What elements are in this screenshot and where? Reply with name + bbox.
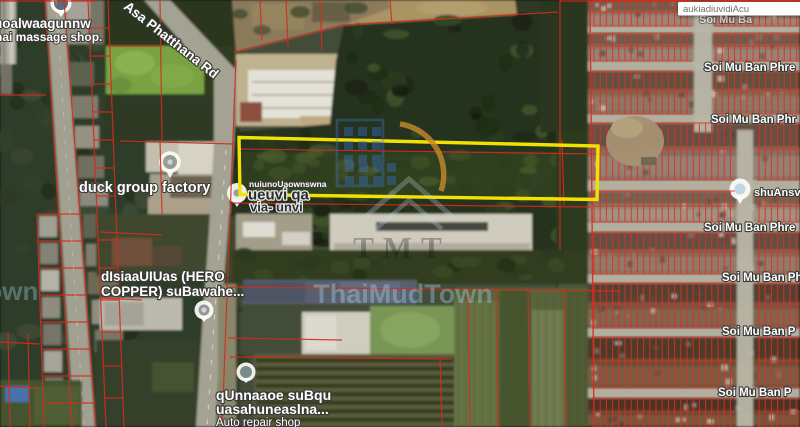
svg-text:ThaiMudTown: ThaiMudTown (0, 276, 38, 306)
svg-text:ThaiMudTown: ThaiMudTown (313, 279, 492, 309)
svg-text:aukiadiuvidiAcu: aukiadiuvidiAcu (683, 4, 749, 15)
svg-text:Soi Mu Ban P: Soi Mu Ban P (718, 387, 792, 399)
svg-text:uasahuneaslna...: uasahuneaslna... (216, 401, 329, 417)
svg-text:Soi Mu Ban Ph: Soi Mu Ban Ph (722, 272, 800, 284)
svg-text:Soi Mu Ban Phre: Soi Mu Ban Phre (704, 62, 795, 74)
svg-text:Soi Mu Ban P: Soi Mu Ban P (722, 326, 796, 338)
svg-text:Auto repair shop: Auto repair shop (216, 417, 300, 427)
svg-text:Soi Mu Ban Phre: Soi Mu Ban Phre (704, 222, 795, 234)
svg-text:COPPER) suBawahe...: COPPER) suBawahe... (101, 284, 244, 299)
svg-text:TMT: TMT (353, 230, 451, 265)
svg-text:dIsiaaUIUas (HERO: dIsiaaUIUas (HERO (101, 269, 225, 284)
svg-text:shuAnsv: shuAnsv (754, 187, 800, 199)
svg-text:uoalwaagunnw: uoalwaagunnw (0, 16, 91, 31)
svg-text:via- unvi: via- unvi (250, 200, 303, 215)
svg-text:Soi Mu Ba: Soi Mu Ba (699, 14, 753, 26)
svg-text:duck group factory: duck group factory (79, 180, 210, 196)
svg-text:hai massage shop.: hai massage shop. (0, 30, 102, 44)
svg-text:Soi Mu Ban Phr: Soi Mu Ban Phr (711, 114, 797, 126)
